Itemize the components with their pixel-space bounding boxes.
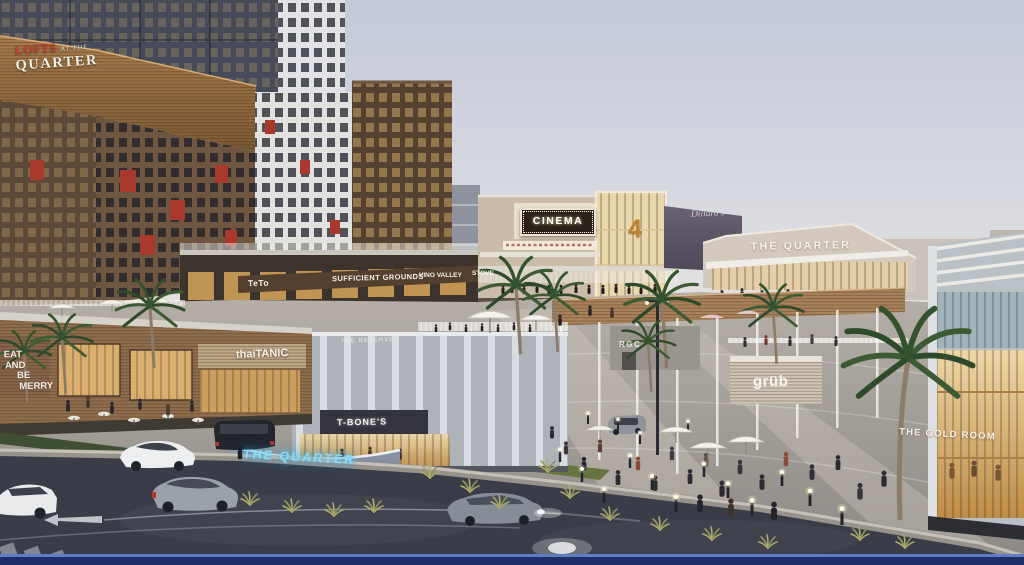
stove-sign: STOVE (472, 271, 494, 278)
quarter-building-sign: THE QUARTER (751, 240, 851, 253)
scene-illustration (0, 0, 1024, 565)
rgc-sign: RGC (619, 341, 641, 349)
eat-and-be-merry-mural: EAT AND BE MERRY (4, 350, 54, 393)
lofts-at-the: AT THE (60, 44, 88, 53)
thaitanic-sign: thaiTANIC (236, 348, 289, 361)
auditorium-number-sign: 4 (628, 216, 642, 242)
white-coupe (0, 485, 57, 519)
grub-sign: grüb (753, 374, 788, 390)
teto-sign: TeTo (248, 279, 269, 288)
vino-valley-sign: VINO VALLEY (419, 273, 462, 280)
cinema-marquee-sign: CINEMA (520, 208, 596, 236)
bottom-border (0, 554, 1024, 565)
tbones-sign: T-BONE'S (337, 418, 387, 428)
rendering-canvas: LOFTS AT THE QUARTER CINEMA 4 THE QUARTE… (0, 0, 1024, 565)
lofts-quarter-sign: LOFTS AT THE QUARTER (14, 36, 99, 74)
cinema-label: CINEMA (533, 216, 583, 227)
mural-line: MERRY (4, 381, 53, 392)
dark-suv (214, 420, 275, 450)
department-store-script-sign: Dillard's (691, 209, 725, 221)
tbones-terrace-building (292, 322, 568, 472)
